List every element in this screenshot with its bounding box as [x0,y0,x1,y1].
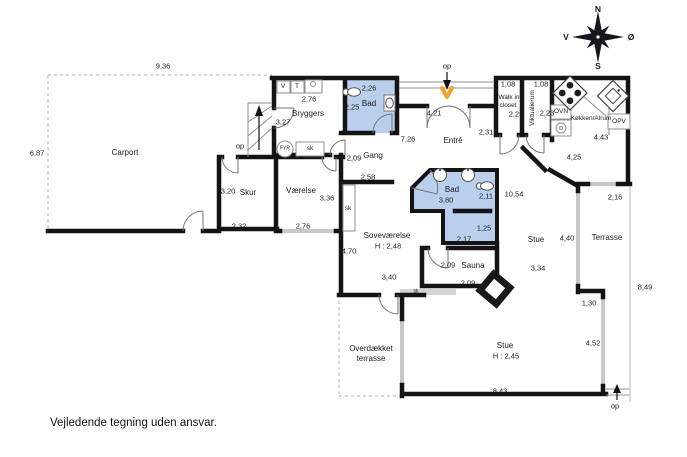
dim-skur-h: 3,20 [221,187,236,195]
room-label-overdaekket-2: terrasse [357,355,386,363]
room-label-bad-midt: Bad [445,186,459,194]
room-label-gang: Gang [363,152,383,160]
washer-label: V [281,84,285,91]
dim-bryggers-h: 3,27 [276,118,291,126]
closet-label: sk [345,206,352,213]
dim-bad-midt-e: 2,11 [479,192,493,200]
room-label-bryggers: Bryggers [292,110,324,118]
stairs-up-label: op [611,402,619,410]
room-label-terrasse: Terrasse [592,234,623,242]
utility-sink-icon [311,82,316,87]
room-label-viktualierum: Viktualierum [530,90,537,126]
washbasin-icon [386,98,394,108]
dim-bad-midt-s2: 2,17 [457,235,472,243]
dim-bryggers-w: 2,76 [302,95,317,103]
boiler-label: FYR [280,147,290,152]
dim-sauna-w: 2,09 [441,261,456,269]
dim-sovevaerelse-w: 4,70 [342,247,357,255]
dim-terrasse-top: 2,16 [608,193,623,201]
kitchen-appliance-dot [560,127,563,130]
room-label-skur: Skur [240,189,256,197]
room-label-kokken: Køkken/Alrum [571,116,612,123]
entrance-door-right [448,106,470,128]
dim-walkin-w: 1,08 [501,80,516,88]
dim-bad-nord-w: 2,26 [362,84,377,92]
stairs-up-label: op [236,142,244,150]
room-label-bad-nord: Bad [362,100,376,108]
dim-terrasse-total: 8,49 [638,283,653,291]
dim-viktualierum-h: 2,23 [540,109,555,117]
floor-plan: 9,36 6,87 Carport op 3,20 Skur 2,32 Være… [0,0,687,457]
dim-hall: 10,54 [505,190,524,198]
dim-stue-b: 3,34 [531,264,546,272]
kitchen-sink-icon [597,80,628,111]
toilet-icon [481,182,494,190]
dim-stue-a: 4,40 [560,234,575,242]
dim-walkin-h: 2,23 [509,110,524,118]
dim-gang-l: 2,58 [361,173,376,181]
room-label-sovevaerelse: Soveværelse [364,232,411,240]
stairs-up-label: op [443,62,451,70]
dim-stue-syd-w: 8,43 [493,387,508,395]
dim-bad-midt-w: 3,80 [439,196,454,204]
compass-west-label: V [563,33,569,42]
up-arrow-icon [255,105,263,116]
room-label-overdaekket-1: Overdækket [349,345,393,353]
dim-sovevaerelse-s: 3,40 [382,273,397,281]
dryer-label: T [295,84,299,91]
floor-plan-drawing [0,0,687,457]
room-label-stue-syd: Stue [497,342,513,350]
dim-kokken-a: 4,43 [594,133,609,141]
dim-stue-syd-ceiling: H : 2,45 [493,352,519,360]
room-label-vaerelse: Værelse [286,187,316,195]
dim-terrasse-step: 1,30 [582,299,597,307]
tap-icon [467,169,469,171]
disclaimer-text: Vejledende tegning uden ansvar. [50,417,217,429]
dim-vaerelse-h: 3,36 [320,194,335,202]
dishwasher-label: OPV [612,119,626,126]
room-label-entre: Entré [443,137,462,145]
compass-north-label: N [595,5,601,14]
oven-label: OVN [554,109,568,116]
dim-entre-e: 2,31 [479,128,494,136]
dim-vaerelse-w: 2,76 [296,222,311,230]
tap-icon [439,169,441,171]
dim-bad-midt-s1: 1,25 [477,224,492,232]
dim-sovevaerelse-ceiling: H : 2,48 [375,242,401,250]
dim-sauna-s: 2,09 [461,279,476,287]
closet-label: sk [307,146,314,153]
dim-carport-depth: 6,87 [30,149,45,157]
dim-bad-nord-h: 2,25 [345,103,360,111]
fireplace-icon [475,269,514,308]
dim-terrasse-lower: 4,52 [586,339,601,347]
dim-kokken-b: 4,25 [567,153,582,161]
compass-east-label: Ø [628,33,635,42]
room-label-stue: Stue [528,236,544,244]
dim-skur-w: 2,32 [232,222,247,230]
compass-rose-icon [572,11,624,63]
dim-entre-w: 7,26 [401,135,416,143]
room-label-sauna: Sauna [461,262,484,270]
closet-label: sk [414,290,419,295]
dim-entre-door: 4,21 [427,109,442,117]
toilet-icon [348,88,361,96]
compass-south-label: S [595,62,601,71]
dim-viktualierum-w: 1,08 [534,80,549,88]
room-label-walkin-1: Walk in [498,95,519,102]
dim-carport-width: 9,36 [156,62,171,70]
room-label-carport: Carport [112,149,139,157]
dim-gang-w: 2,09 [347,154,362,162]
